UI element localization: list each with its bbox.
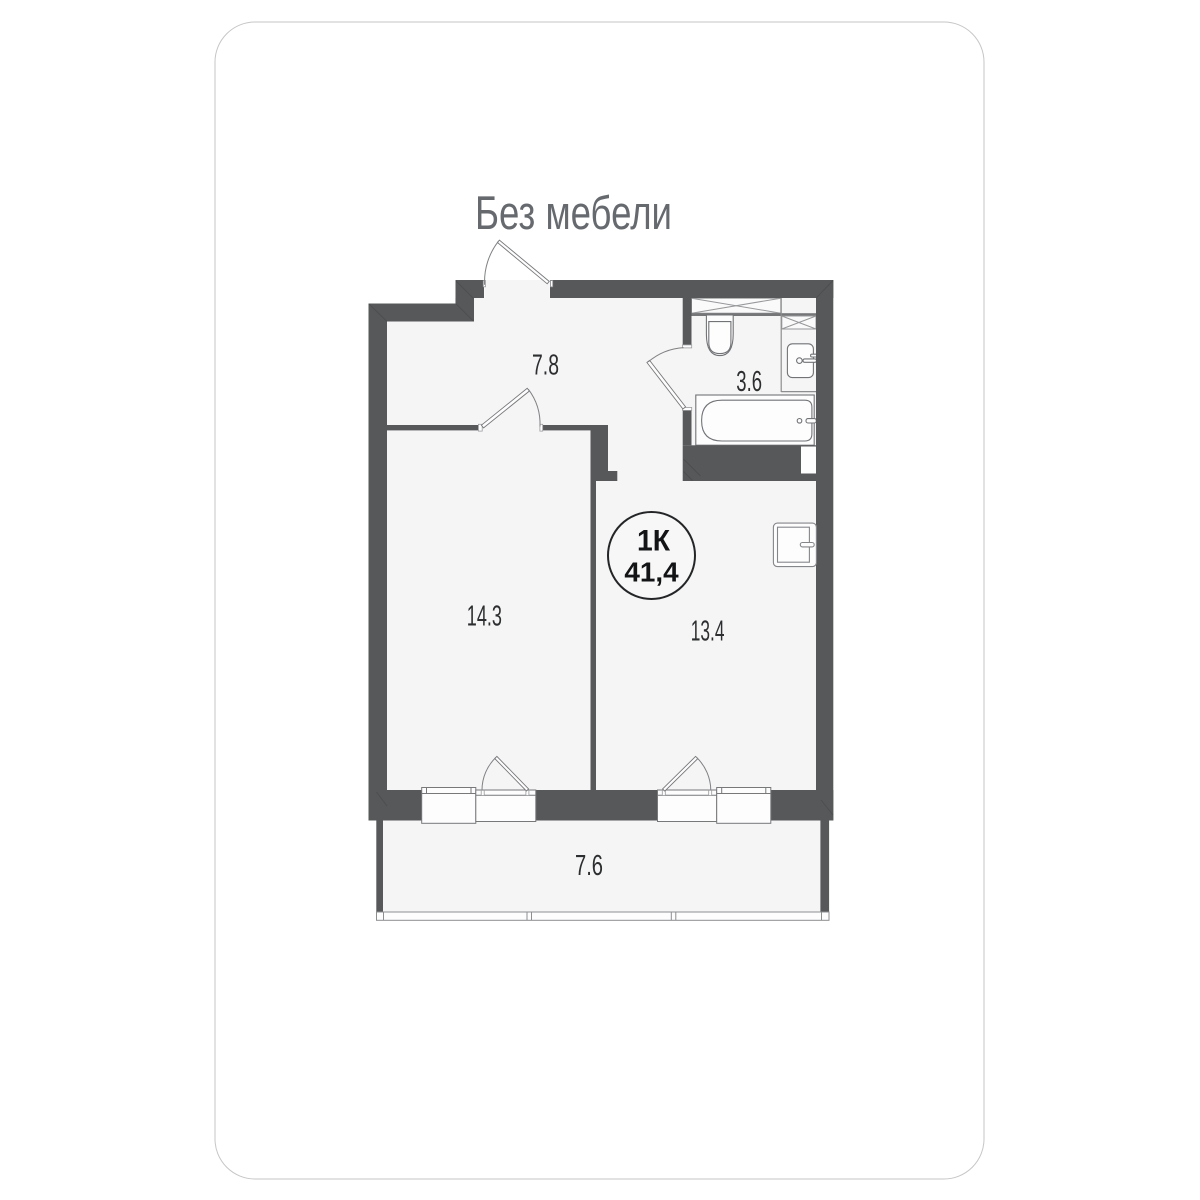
svg-text:7.6: 7.6 bbox=[575, 850, 603, 882]
svg-text:3.6: 3.6 bbox=[736, 366, 762, 398]
svg-text:1К: 1К bbox=[637, 525, 671, 558]
svg-text:41,4: 41,4 bbox=[624, 556, 679, 587]
svg-text:7.8: 7.8 bbox=[532, 350, 559, 382]
svg-text:13.4: 13.4 bbox=[691, 616, 725, 648]
svg-text:Без мебели: Без мебели bbox=[475, 186, 672, 239]
svg-text:14.3: 14.3 bbox=[467, 601, 502, 633]
